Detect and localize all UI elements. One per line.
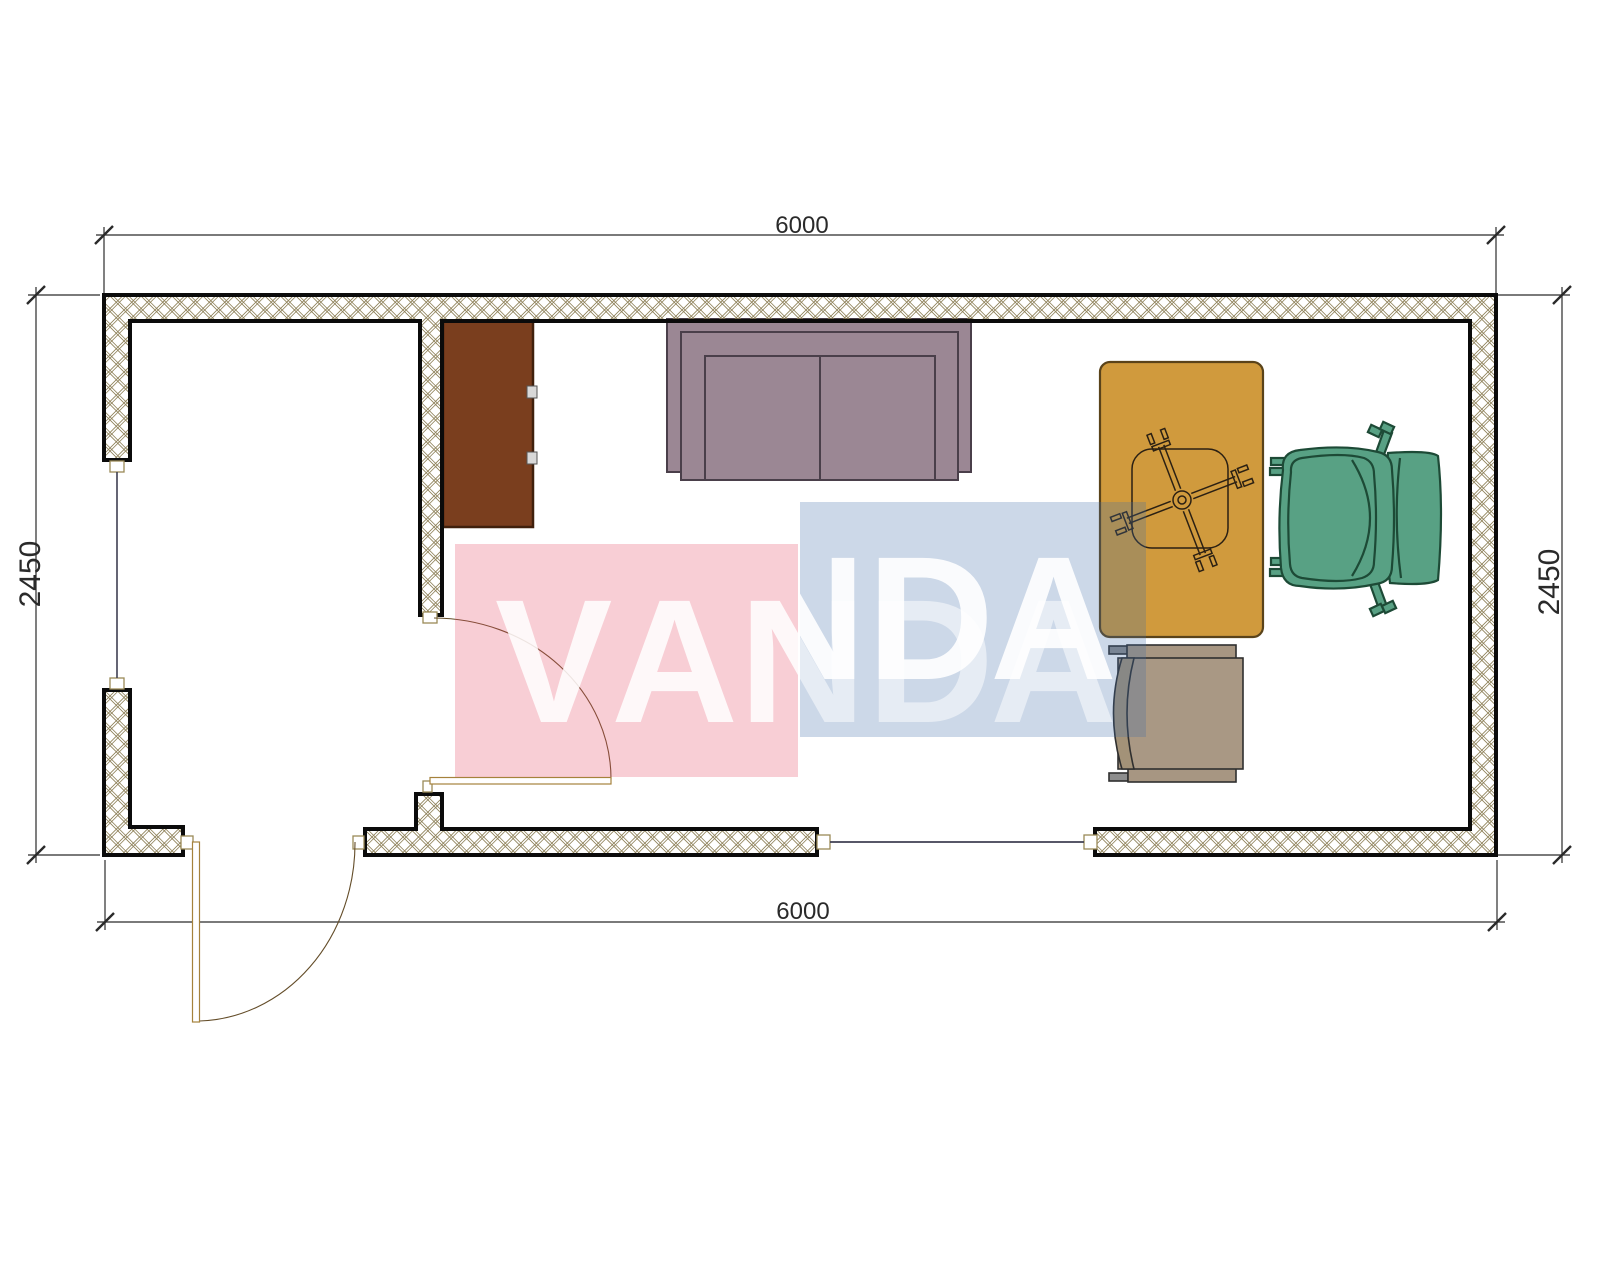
svg-text:6000: 6000 <box>776 898 829 925</box>
svg-text:2450: 2450 <box>1533 549 1566 616</box>
svg-text:6000: 6000 <box>775 212 828 239</box>
svg-text:2450: 2450 <box>14 541 47 608</box>
